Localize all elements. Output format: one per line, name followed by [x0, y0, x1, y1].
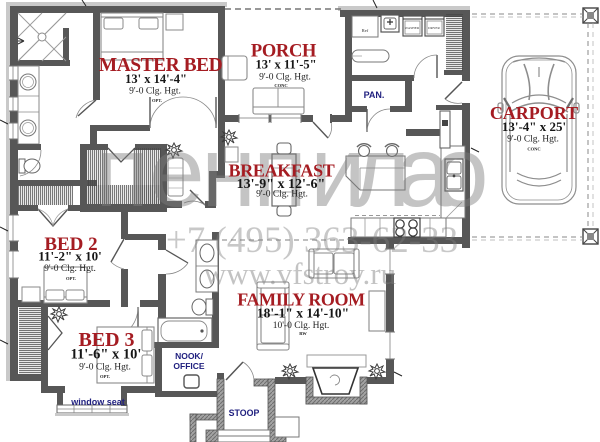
svg-text:window seat: window seat — [70, 397, 125, 407]
svg-text:RW: RW — [299, 331, 307, 336]
svg-text:9'-0 Clg. Hgt.: 9'-0 Clg. Hgt. — [507, 135, 559, 145]
svg-text:13' x 14'-4": 13' x 14'-4" — [125, 72, 187, 86]
svg-text:е: е — [149, 116, 205, 228]
svg-text:NOOK/: NOOK/ — [175, 351, 204, 361]
svg-text:13' x 11'-5": 13' x 11'-5" — [255, 58, 316, 72]
svg-text:OFFICE: OFFICE — [173, 361, 204, 371]
svg-text:CONC: CONC — [527, 147, 540, 152]
svg-text:11'-2" x 10': 11'-2" x 10' — [38, 249, 102, 264]
svg-text:OPT.: OPT. — [152, 98, 162, 103]
svg-text:9'-0 Clg. Hgt.: 9'-0 Clg. Hgt. — [44, 264, 96, 274]
svg-text:DRYER: DRYER — [428, 26, 440, 30]
svg-text:www.vfstroy.ru: www.vfstroy.ru — [204, 256, 396, 291]
svg-text:п: п — [95, 116, 149, 228]
svg-text:+7 (495) 363-62-33: +7 (495) 363-62-33 — [166, 220, 458, 261]
svg-text:WASHER: WASHER — [405, 26, 420, 30]
svg-text:9'-0 Clg. Hgt.: 9'-0 Clg. Hgt. — [259, 73, 311, 83]
svg-text:10'-0 Clg. Hgt.: 10'-0 Clg. Hgt. — [273, 321, 330, 331]
svg-text:OPT.: OPT. — [100, 374, 110, 379]
svg-text:9'-0 Clg. Hgt.: 9'-0 Clg. Hgt. — [79, 363, 131, 373]
svg-text:9'-0 Clg. Hgt.: 9'-0 Clg. Hgt. — [256, 190, 308, 200]
svg-text:11'-6" x 10': 11'-6" x 10' — [71, 347, 142, 363]
svg-text:18'-1" x 14'-10": 18'-1" x 14'-10" — [257, 306, 349, 321]
svg-text:13'-4" x 25': 13'-4" x 25' — [502, 119, 566, 134]
svg-text:9'-0 Clg. Hgt.: 9'-0 Clg. Hgt. — [129, 87, 181, 97]
svg-text:OPT.: OPT. — [66, 276, 76, 281]
svg-text:CONC: CONC — [274, 83, 287, 88]
svg-text:PAN.: PAN. — [364, 90, 385, 100]
svg-text:о: о — [433, 116, 489, 228]
svg-text:Ref: Ref — [362, 28, 369, 33]
svg-text:STOOP: STOOP — [229, 408, 260, 418]
